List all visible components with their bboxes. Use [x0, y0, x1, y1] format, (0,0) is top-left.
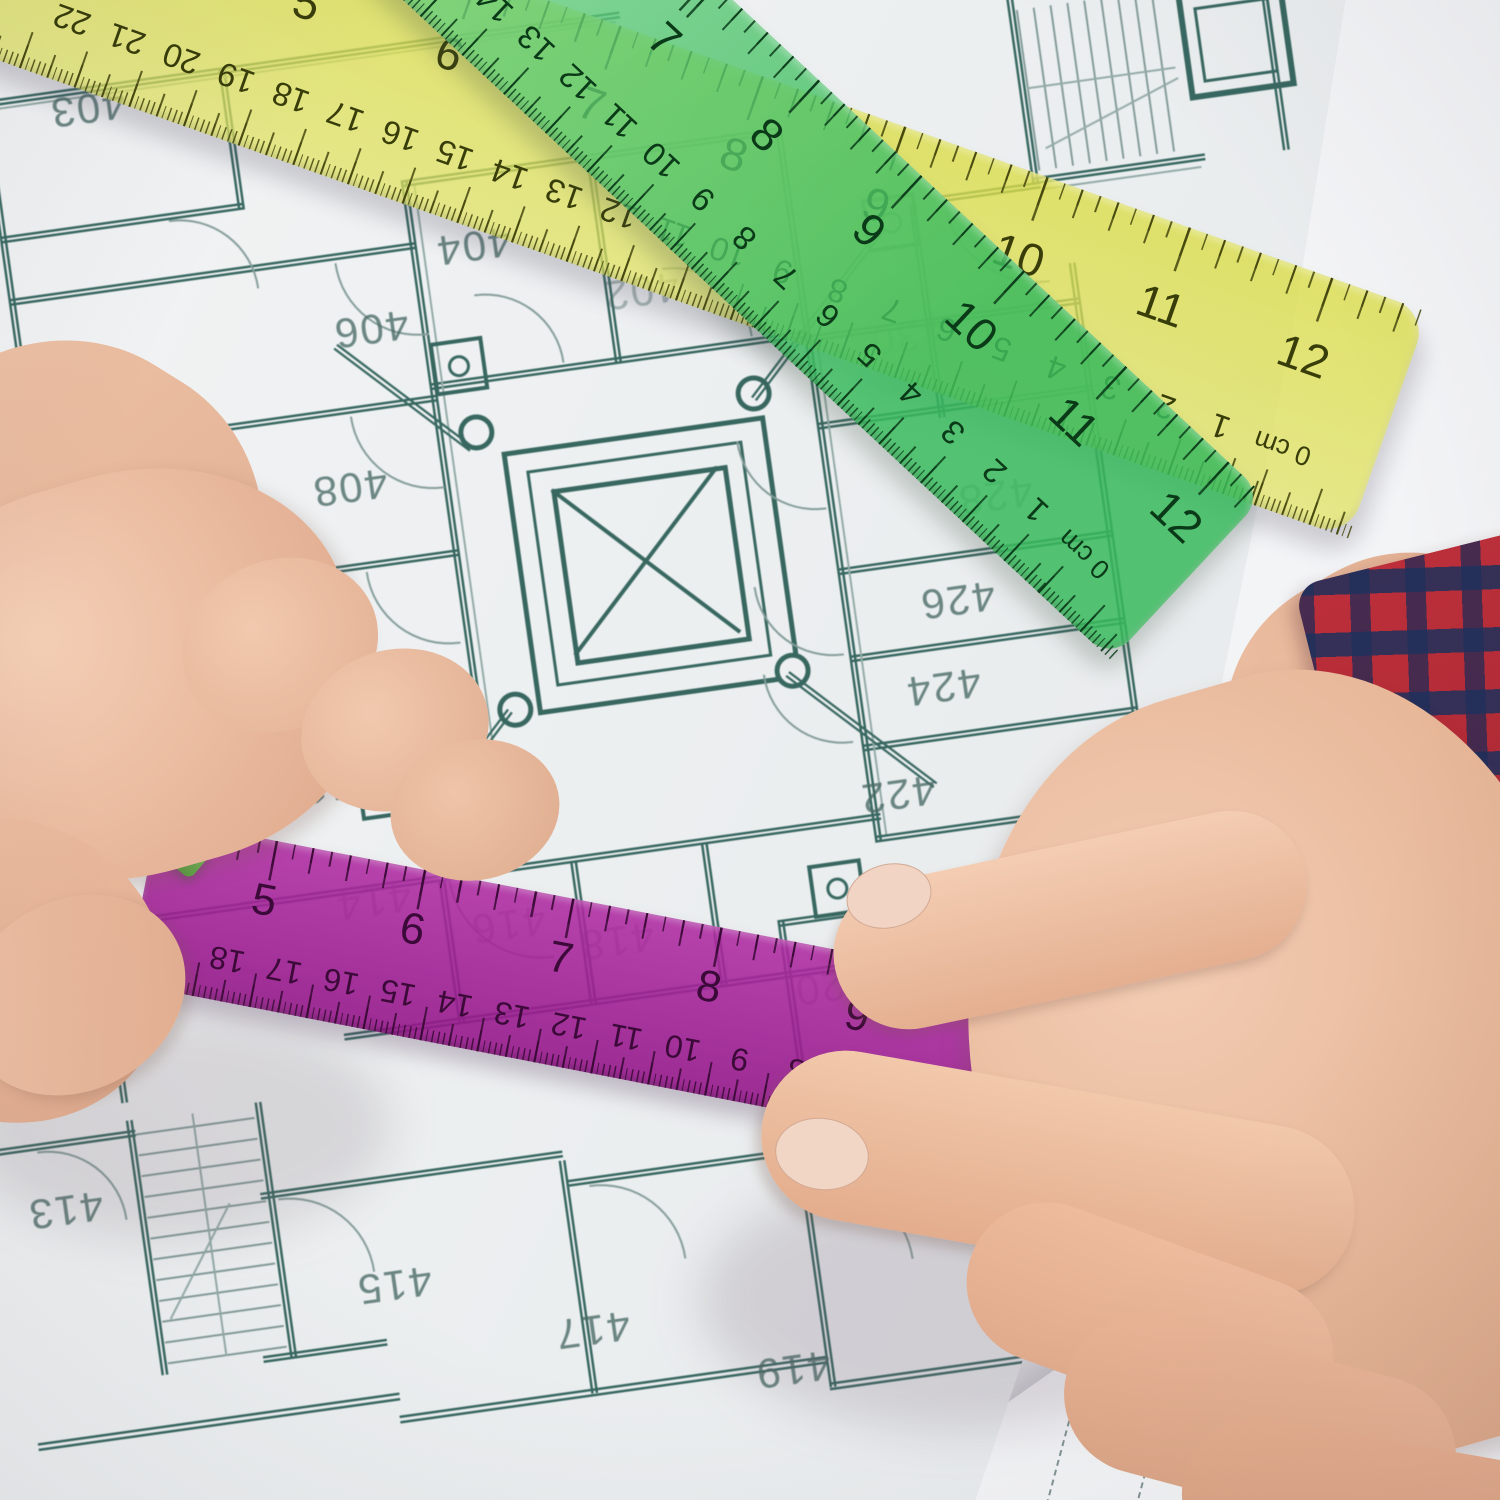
- ruler-cm-number: 17: [263, 949, 305, 992]
- ruler-cm-number: 7: [767, 257, 806, 297]
- ruler-cm-number: 1: [1017, 490, 1056, 530]
- wall-segment: [777, 893, 971, 927]
- ruler-cm-number: 16: [376, 112, 423, 160]
- ruler-inch-number: 7: [544, 932, 578, 986]
- door-arc: [474, 283, 564, 373]
- wall-segment: [862, 706, 1138, 752]
- ruler-cm-number: 20: [158, 34, 205, 82]
- ruler-cm-number: 18: [267, 73, 314, 121]
- ruler-cm-number: 3: [933, 412, 972, 452]
- room-number-424: 424: [902, 658, 984, 716]
- ruler-cm-number: 17: [322, 92, 369, 140]
- ruler-inch-number: 12: [1270, 322, 1336, 390]
- ruler-inch-number: 11: [1130, 272, 1193, 339]
- ruler-zero-label: 0 cm: [1250, 423, 1316, 472]
- elevator-shaft: [1175, 0, 1297, 101]
- ruler-cm-number: 9: [683, 179, 722, 219]
- ruler-inch-number: 9: [840, 989, 874, 1043]
- door-arc: [366, 560, 461, 655]
- ruler-inch-number: 5: [247, 874, 281, 928]
- ruler-cm-number: 18: [206, 938, 248, 981]
- ruler-cm-number: 5: [850, 334, 889, 374]
- room-number-408: 408: [309, 458, 391, 516]
- ruler-cm-number: 21: [103, 15, 150, 63]
- ruler-cm-number: 15: [377, 971, 419, 1014]
- room-number-415: 415: [353, 1256, 435, 1314]
- room-number-422: 422: [857, 765, 939, 823]
- room-number-406: 406: [330, 300, 412, 358]
- ruler-cm-number: 10: [662, 1026, 704, 1069]
- wall-segment: [38, 1392, 401, 1451]
- ruler-inch-number: 7: [637, 11, 693, 68]
- ruler-cm-number: 1: [1205, 405, 1235, 447]
- ruler-cm-number: 11: [606, 1015, 646, 1058]
- ruler-cm-number: 12: [548, 1004, 590, 1047]
- ruler-inch-number: 5: [286, 0, 328, 33]
- ruler-cm-number: 14: [434, 982, 476, 1025]
- ruler-cm-number: 13: [540, 170, 587, 218]
- ruler-inch-number: 9: [842, 201, 898, 258]
- ruler-cm-number: 19: [212, 54, 259, 102]
- ruler-cm-number: 14: [486, 150, 533, 198]
- door-arc: [763, 664, 853, 754]
- tree-symbol: [1346, 1154, 1448, 1255]
- ruler-inch-number: 8: [692, 960, 726, 1014]
- ruler-cm-number: 8: [725, 218, 764, 258]
- wall-segment: [568, 1147, 802, 1187]
- ruler-cm-number: 16: [320, 960, 362, 1003]
- stairwell-top: [1016, 0, 1187, 171]
- room-number-426: 426: [916, 571, 998, 629]
- ruler-cm-number: 6: [808, 295, 847, 335]
- room-number-410: 410: [283, 612, 365, 670]
- ruler-cm-number: 22: [48, 0, 95, 44]
- room-number-417: 417: [551, 1301, 633, 1359]
- ruler-cm-number: 15: [431, 131, 478, 179]
- ruler-cm-number: 13: [491, 993, 533, 1036]
- door-arc: [169, 209, 259, 299]
- ruler-inch-number: 6: [396, 903, 430, 957]
- anchor-square: [807, 858, 868, 919]
- door-arc: [589, 1173, 686, 1270]
- hand-shadow: [700, 1170, 1220, 1430]
- ruler-inch-number: 8: [739, 106, 795, 163]
- room-number-412: 412: [273, 759, 355, 817]
- photo-canvas: 4034044064084104124024304284264244224144…: [0, 0, 1500, 1500]
- ruler-cm-number: 4: [892, 373, 931, 413]
- ruler-cm-number: 2: [975, 451, 1014, 491]
- tree-symbol: [1482, 1170, 1500, 1278]
